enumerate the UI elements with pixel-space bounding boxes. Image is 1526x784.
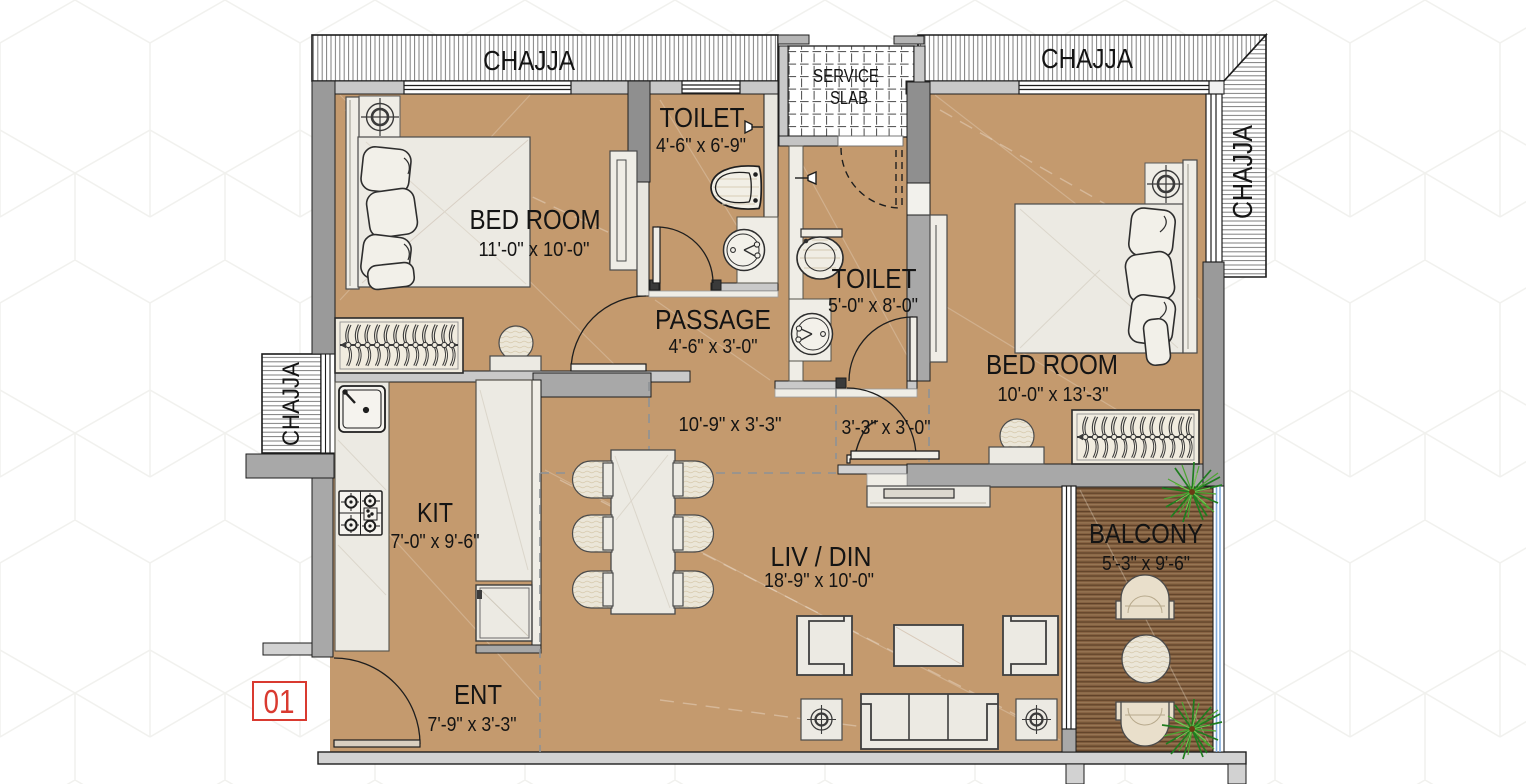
- svg-text:7'-9" x 3'-3": 7'-9" x 3'-3": [428, 714, 517, 736]
- svg-text:CHAJJA: CHAJJA: [1041, 43, 1133, 74]
- svg-text:LIV / DIN: LIV / DIN: [771, 541, 872, 572]
- svg-text:CHAJJA: CHAJJA: [278, 362, 305, 446]
- svg-text:3'-3" x 3'-0": 3'-3" x 3'-0": [842, 417, 931, 439]
- svg-text:CHAJJA: CHAJJA: [1227, 125, 1258, 219]
- svg-text:ENT: ENT: [454, 679, 502, 710]
- svg-text:4'-6" x 3'-0": 4'-6" x 3'-0": [669, 336, 758, 358]
- svg-text:01: 01: [264, 683, 295, 720]
- svg-text:BED ROOM: BED ROOM: [470, 204, 601, 235]
- svg-text:18'-9" x 10'-0": 18'-9" x 10'-0": [764, 570, 874, 592]
- svg-text:5'-0" x 8'-0": 5'-0" x 8'-0": [828, 295, 918, 317]
- svg-text:TOILET: TOILET: [660, 102, 745, 133]
- svg-text:SERVICE: SERVICE: [813, 66, 879, 86]
- svg-text:SLAB: SLAB: [830, 88, 868, 108]
- svg-text:10'-0" x 13'-3": 10'-0" x 13'-3": [998, 384, 1109, 406]
- svg-text:CHAJJA: CHAJJA: [483, 45, 575, 76]
- svg-text:PASSAGE: PASSAGE: [655, 304, 771, 335]
- svg-text:TOILET: TOILET: [832, 263, 917, 294]
- svg-text:10'-9" x 3'-3": 10'-9" x 3'-3": [679, 414, 782, 436]
- svg-text:BED ROOM: BED ROOM: [986, 349, 1118, 380]
- svg-text:7'-0" x 9'-6": 7'-0" x 9'-6": [391, 531, 480, 553]
- svg-text:BALCONY: BALCONY: [1089, 518, 1203, 549]
- svg-text:5'-3" x 9'-6": 5'-3" x 9'-6": [1102, 553, 1190, 575]
- svg-text:11'-0" x 10'-0": 11'-0" x 10'-0": [479, 239, 590, 261]
- svg-text:KIT: KIT: [417, 497, 453, 528]
- svg-text:4'-6" x 6'-9": 4'-6" x 6'-9": [656, 135, 746, 157]
